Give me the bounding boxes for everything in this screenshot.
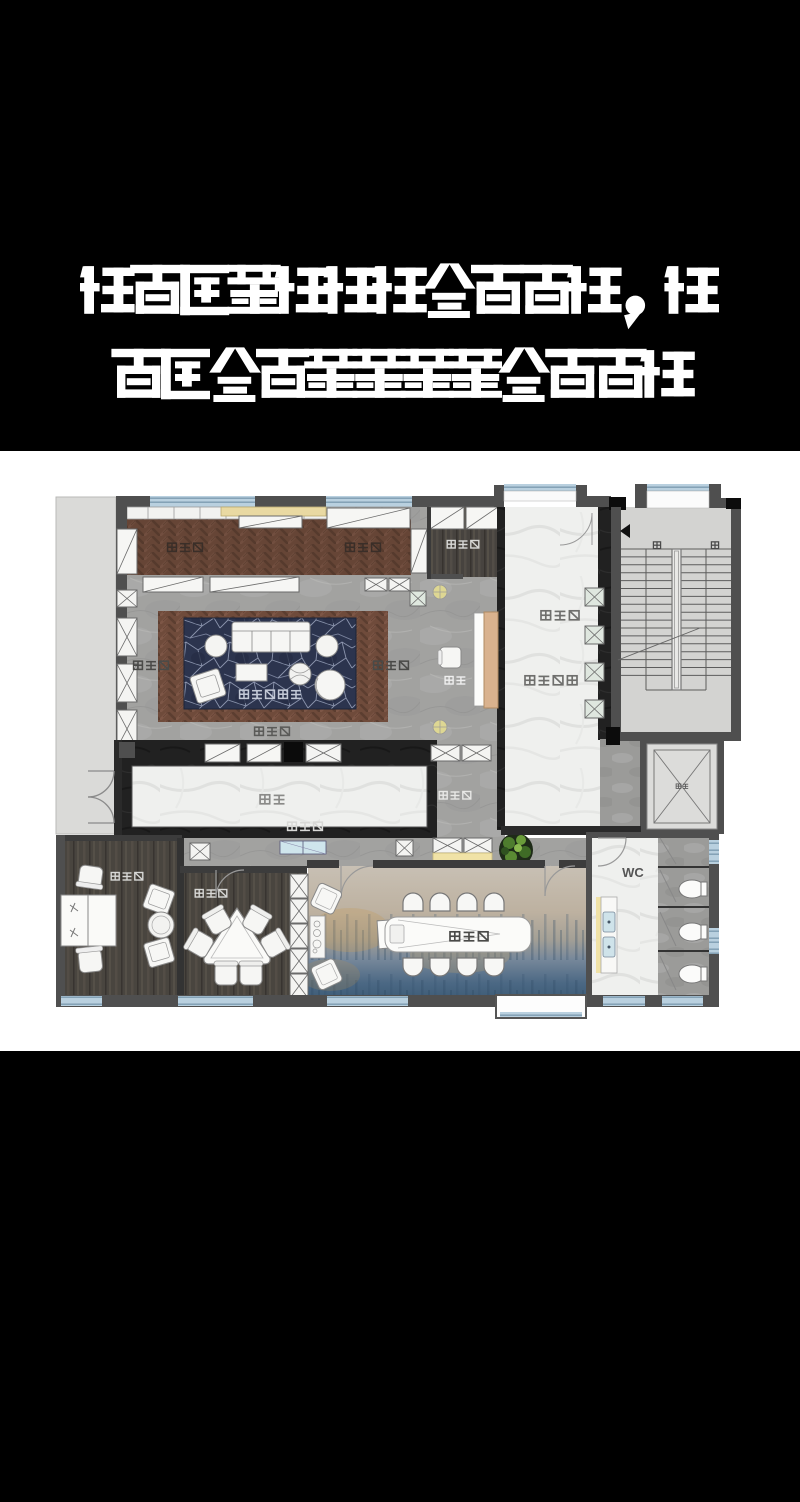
svg-text:WC: WC xyxy=(622,865,644,880)
